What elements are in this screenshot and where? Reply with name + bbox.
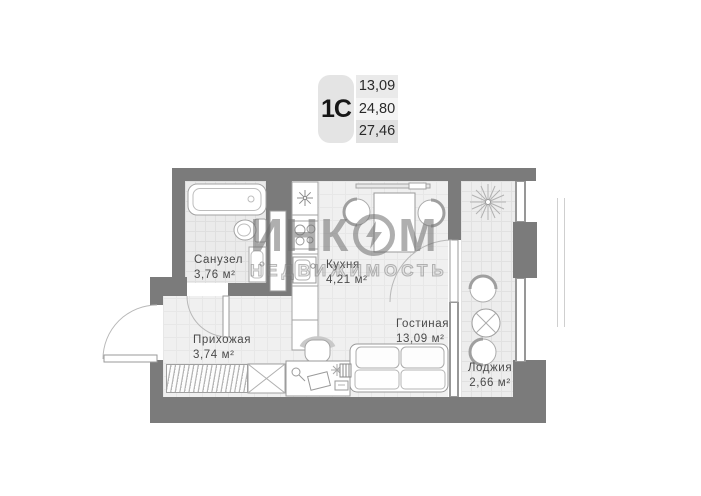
vent-star-icon bbox=[297, 190, 313, 206]
room-name: Гостиная bbox=[396, 317, 449, 332]
room-area: 13,09 м² bbox=[396, 332, 449, 347]
room-area: 4,21 м² bbox=[326, 273, 368, 288]
room-name: Кухня bbox=[326, 258, 368, 273]
wall-tv-shelf bbox=[356, 183, 430, 189]
room-name: Санузел bbox=[194, 253, 243, 268]
room-label-kitchen: Кухня 4,21 м² bbox=[326, 258, 368, 288]
loggia-chair-top bbox=[470, 276, 496, 302]
desk-chair bbox=[302, 339, 333, 362]
floorplan-page: 1С 13,09 24,80 27,46 bbox=[0, 0, 701, 496]
room-area: 3,74 м² bbox=[193, 348, 251, 363]
room-name: Прихожая bbox=[193, 333, 251, 348]
dining-chair-left bbox=[344, 199, 370, 225]
kitchen-counter bbox=[292, 182, 318, 350]
bathtub bbox=[188, 184, 266, 215]
room-label-hallway: Прихожая 3,74 м² bbox=[193, 333, 251, 363]
room-area: 3,76 м² bbox=[194, 268, 243, 283]
room-area: 2,66 м² bbox=[461, 376, 519, 391]
loggia-plant bbox=[470, 184, 506, 220]
bathroom-door bbox=[187, 296, 229, 337]
room-name: Лоджия bbox=[461, 361, 519, 376]
bathroom-kitchen-door-leaf bbox=[270, 211, 286, 291]
room-label-living: Гостиная 13,09 м² bbox=[396, 317, 449, 347]
entrance-door bbox=[103, 305, 157, 362]
bathroom-sink bbox=[249, 247, 266, 282]
room-label-loggia: Лоджия 2,66 м² bbox=[461, 361, 519, 391]
loggia-table bbox=[472, 309, 500, 337]
furniture-layer bbox=[0, 0, 701, 496]
wardrobe-box bbox=[248, 364, 285, 393]
dining-table bbox=[374, 193, 415, 252]
room-label-bathroom: Санузел 3,76 м² bbox=[194, 253, 243, 283]
toilet bbox=[234, 219, 266, 242]
dining-chair-right bbox=[418, 200, 444, 226]
sofa bbox=[350, 344, 448, 392]
